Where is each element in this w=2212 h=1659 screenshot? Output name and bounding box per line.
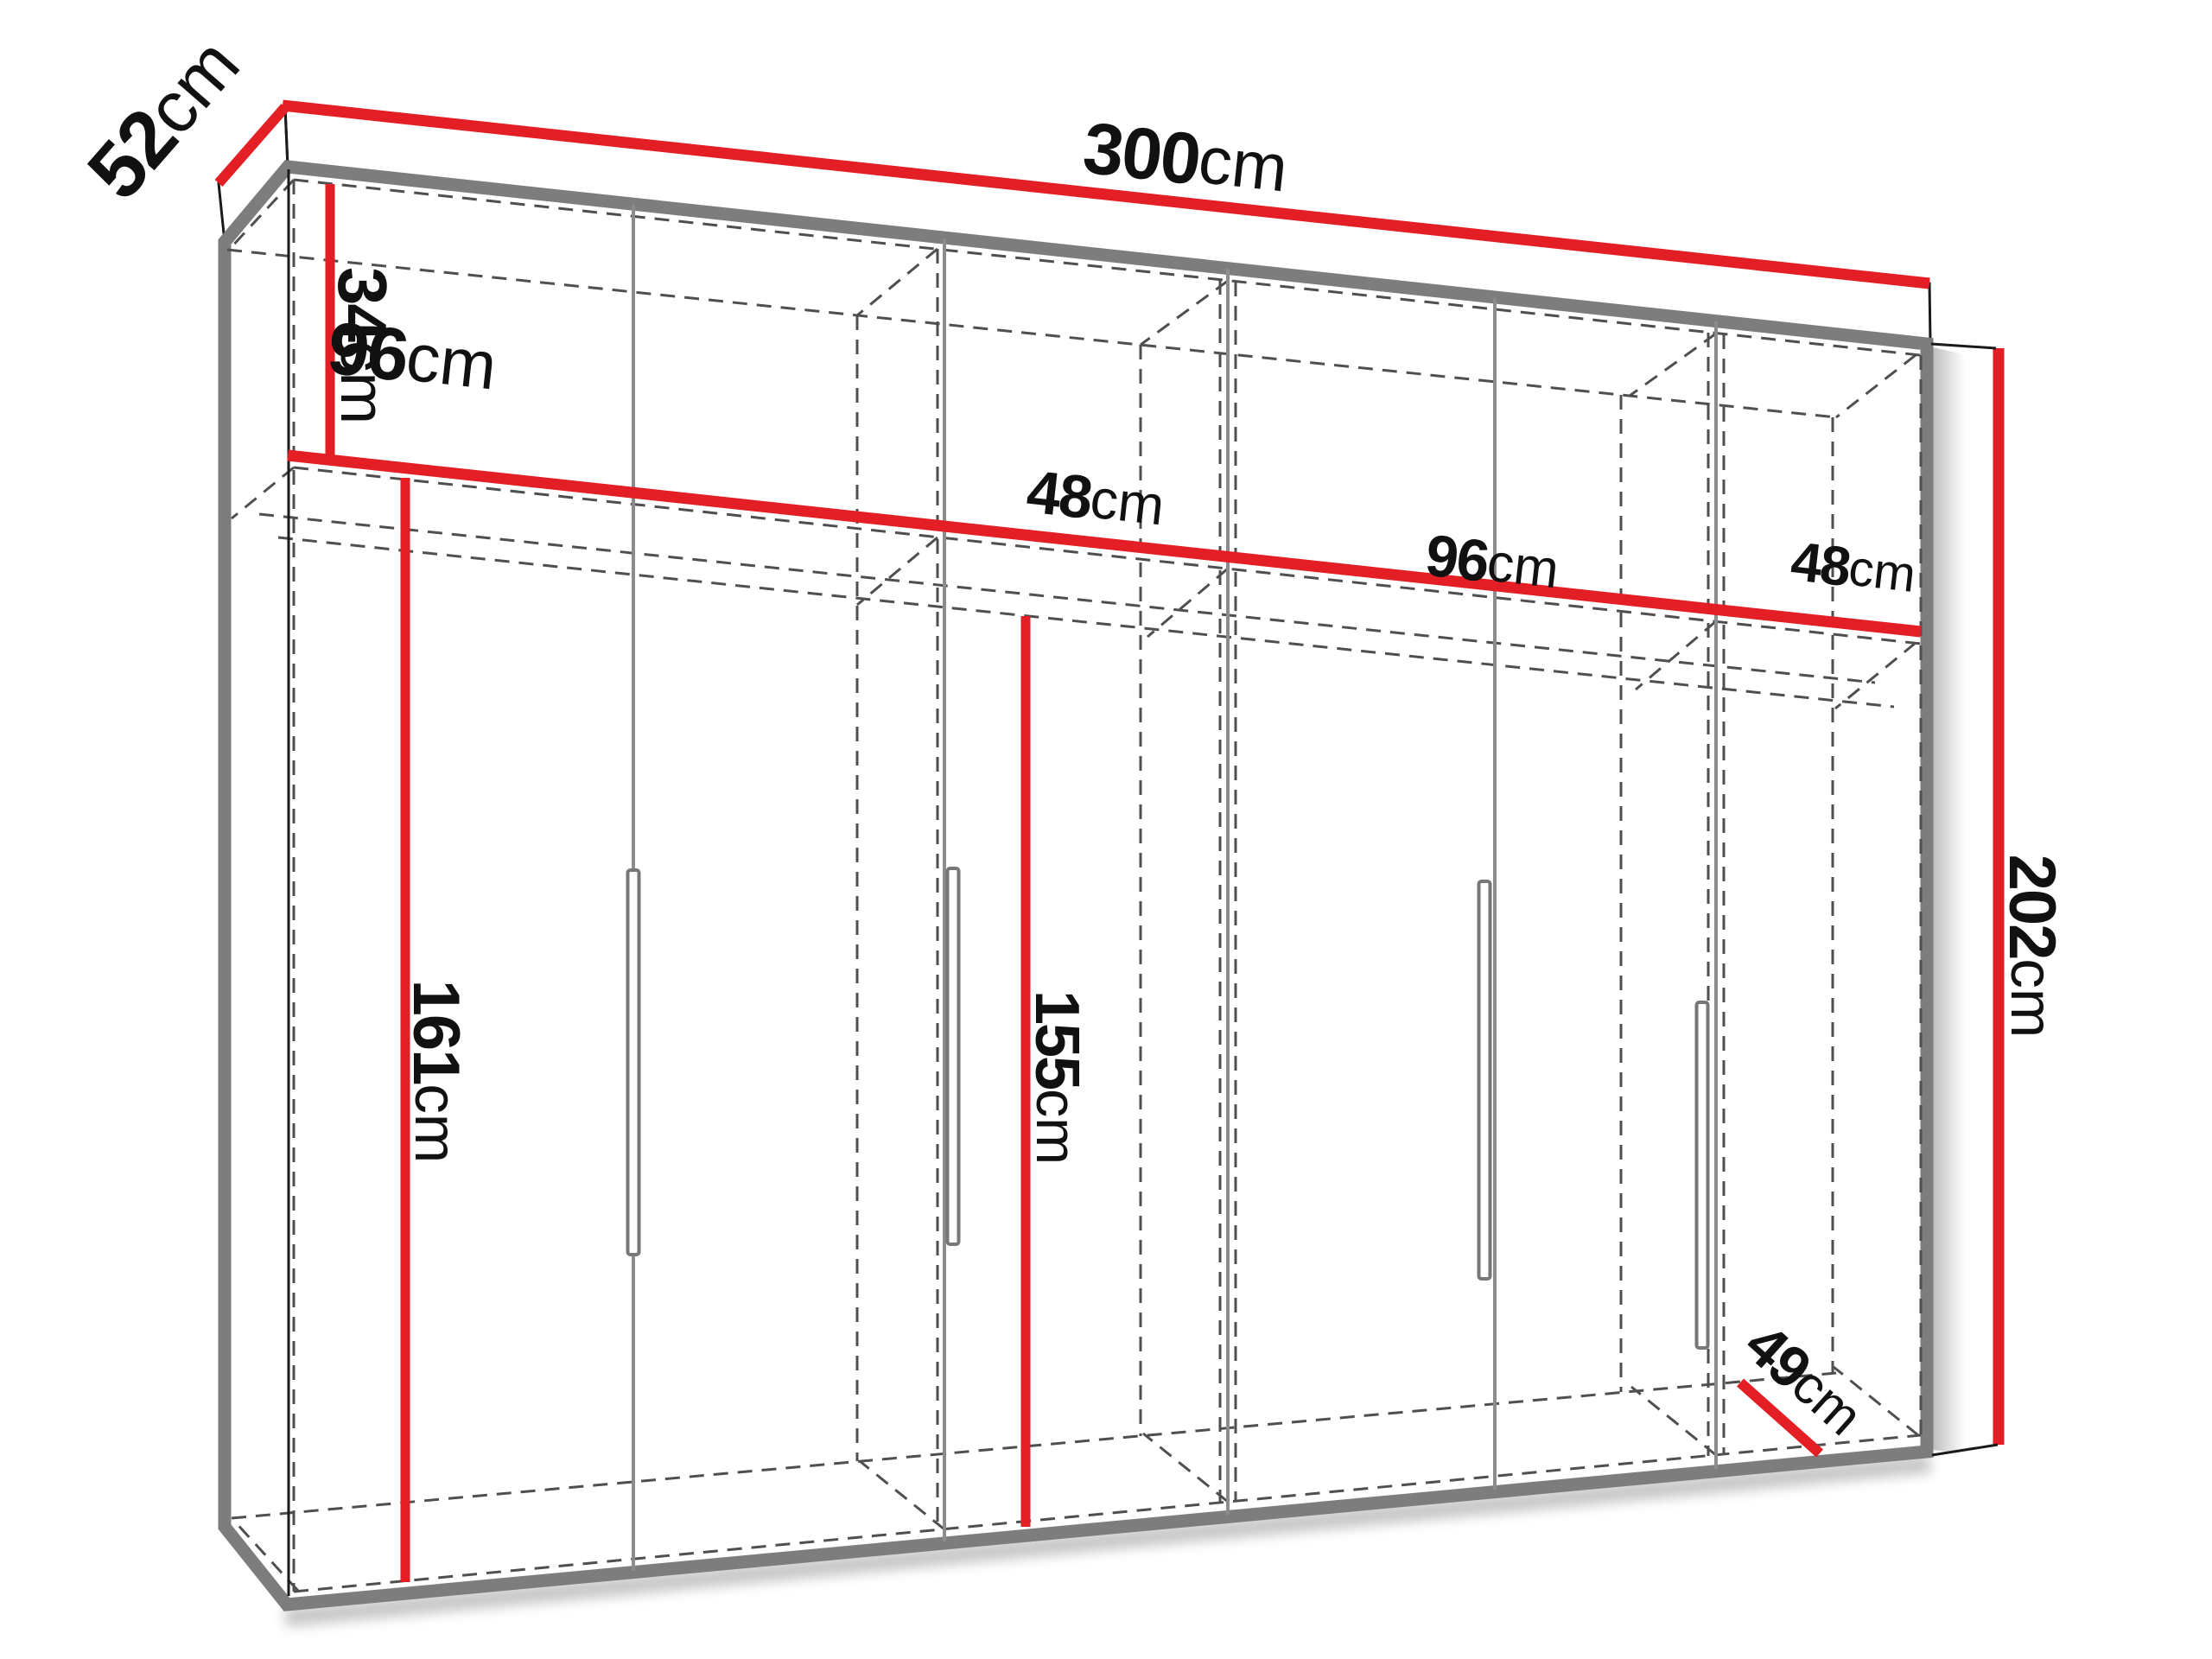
top-depth-diagonal-p3 — [1630, 334, 1716, 396]
floor-depth-diagonal-p2 — [1143, 1433, 1228, 1502]
diagram-canvas: 52cm 300cm 34cm 96cm 48cm 96cm 48cm 161c… — [0, 0, 2212, 1659]
wardrobe-dimension-diagram: 52cm 300cm 34cm 96cm 48cm 96cm 48cm 161c… — [0, 0, 2212, 1659]
top-depth-diagonal-p2 — [1141, 281, 1228, 345]
top-depth-diagonal-p1 — [857, 249, 938, 315]
shelf-depth-diagonal-right — [1835, 643, 1916, 709]
top-depth-diagonal-right — [1836, 355, 1916, 417]
door-handle-1 — [628, 870, 639, 1255]
label-height-155: 155cm — [1022, 990, 1091, 1165]
door-handles — [628, 868, 1708, 1348]
floor-depth-diagonal-p3 — [1631, 1387, 1716, 1455]
top-panel-inner-edge — [294, 180, 1920, 355]
door-handle-2 — [948, 868, 959, 1244]
right-side-shadow — [1933, 347, 1965, 1453]
label-section-4-48: 48cm — [1788, 530, 1919, 606]
label-height-161: 161cm — [400, 980, 474, 1164]
shelf-depth-diagonal-p3 — [1636, 621, 1716, 690]
shelf-depth-diagonal-left — [232, 467, 294, 518]
door-handle-4 — [1697, 1002, 1708, 1348]
floor-depth-diagonal-p1 — [860, 1461, 944, 1529]
label-section-2-48: 48cm — [1024, 458, 1168, 540]
shelf-depth-diagonal-p2 — [1147, 569, 1228, 637]
dimension-labels: 52cm 300cm 34cm 96cm 48cm 96cm 48cm 161c… — [71, 21, 2069, 1449]
door-gap-lines — [633, 205, 1716, 1571]
label-height-202: 202cm — [1996, 855, 2069, 1039]
label-depth-52: 52cm — [71, 21, 257, 215]
label-section-3-96: 96cm — [1422, 523, 1562, 603]
hanging-rod — [278, 537, 1894, 707]
shelf-depth-diagonal-p1 — [857, 537, 938, 605]
floor-front-hidden-edge — [294, 1435, 1921, 1592]
door-handle-3 — [1479, 881, 1491, 1279]
extension-tick-202-top — [1931, 344, 1996, 348]
floor-shadow — [285, 1464, 1930, 1618]
